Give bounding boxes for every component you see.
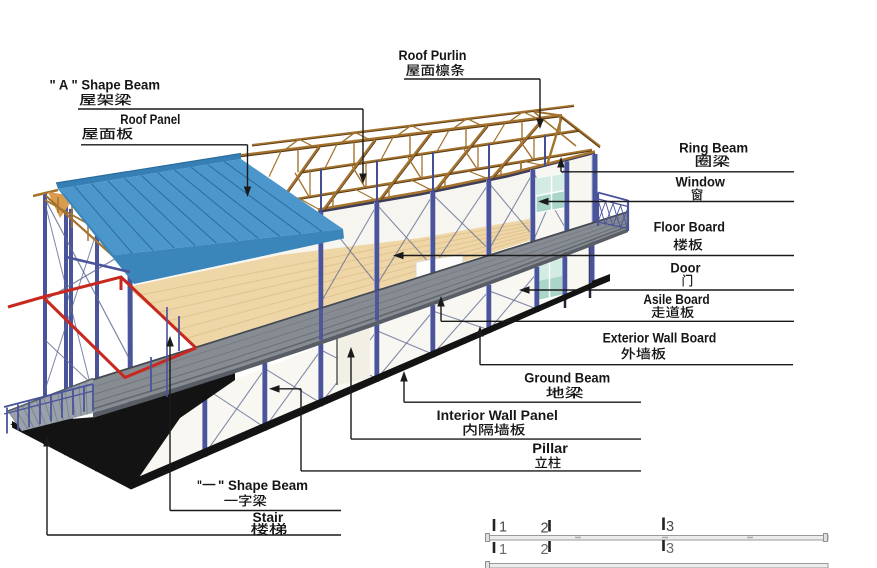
svg-text:Asile Board: Asile Board bbox=[643, 292, 709, 307]
svg-text:Stair: Stair bbox=[253, 510, 285, 525]
svg-text:Ring Beam: Ring Beam bbox=[679, 141, 748, 156]
svg-text:" Shape Beam: " Shape Beam bbox=[218, 478, 308, 493]
svg-text:": " bbox=[197, 478, 202, 493]
svg-text:3: 3 bbox=[666, 541, 674, 557]
svg-text:Roof Purlin: Roof Purlin bbox=[399, 48, 467, 63]
svg-text:2: 2 bbox=[541, 521, 549, 537]
svg-text:Window: Window bbox=[676, 175, 726, 190]
svg-text:Pillar: Pillar bbox=[532, 441, 568, 456]
svg-text:1: 1 bbox=[499, 542, 507, 558]
svg-text:Ground Beam: Ground Beam bbox=[524, 371, 610, 386]
svg-text:Roof Panel: Roof Panel bbox=[120, 112, 180, 127]
svg-text:Exterior Wall Board: Exterior Wall Board bbox=[603, 331, 717, 346]
svg-text:1: 1 bbox=[499, 520, 507, 536]
svg-text:" A " Shape Beam: " A " Shape Beam bbox=[50, 78, 161, 93]
svg-text:3: 3 bbox=[666, 519, 674, 535]
svg-text:Floor Board: Floor Board bbox=[654, 220, 725, 235]
svg-text:Interior Wall Panel: Interior Wall Panel bbox=[437, 408, 558, 423]
svg-text:2: 2 bbox=[541, 542, 549, 558]
svg-text:Door: Door bbox=[670, 261, 701, 276]
